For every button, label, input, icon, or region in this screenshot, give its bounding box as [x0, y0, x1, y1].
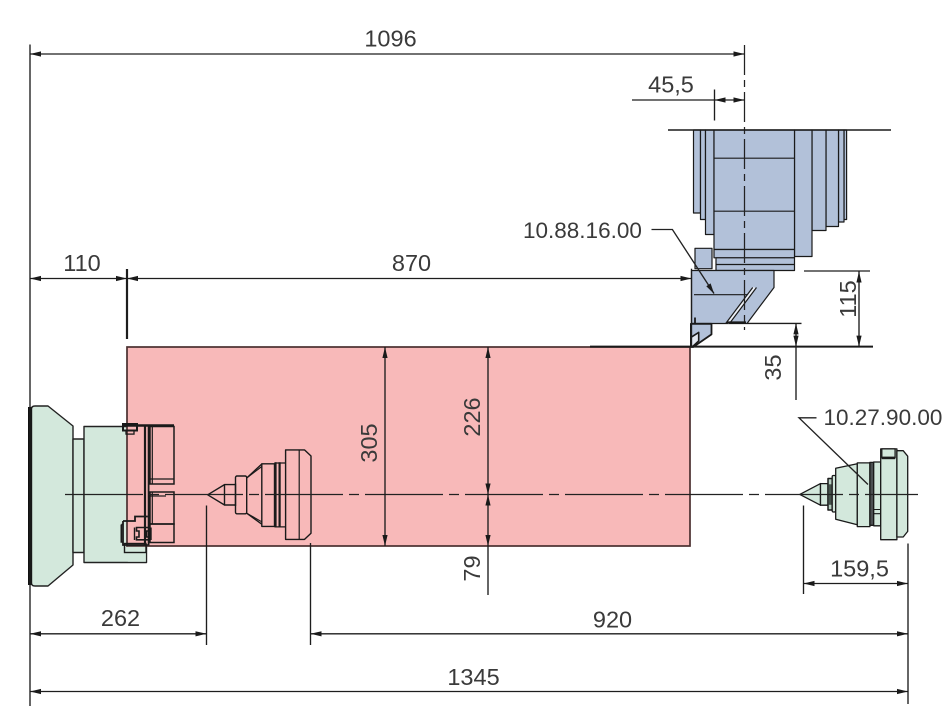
svg-text:920: 920	[593, 607, 632, 633]
svg-text:1345: 1345	[447, 664, 499, 690]
svg-text:35: 35	[760, 354, 786, 380]
svg-text:45,5: 45,5	[648, 72, 694, 98]
svg-text:115: 115	[835, 280, 861, 317]
svg-text:305: 305	[356, 423, 382, 462]
svg-text:262: 262	[101, 605, 140, 631]
svg-text:110: 110	[63, 250, 100, 276]
svg-text:10.88.16.00: 10.88.16.00	[523, 218, 642, 243]
svg-text:1096: 1096	[364, 26, 416, 52]
svg-text:226: 226	[459, 397, 485, 436]
svg-text:159,5: 159,5	[830, 556, 889, 582]
svg-text:10.27.90.00: 10.27.90.00	[824, 405, 943, 430]
svg-text:870: 870	[392, 250, 431, 276]
svg-text:79: 79	[459, 555, 485, 581]
